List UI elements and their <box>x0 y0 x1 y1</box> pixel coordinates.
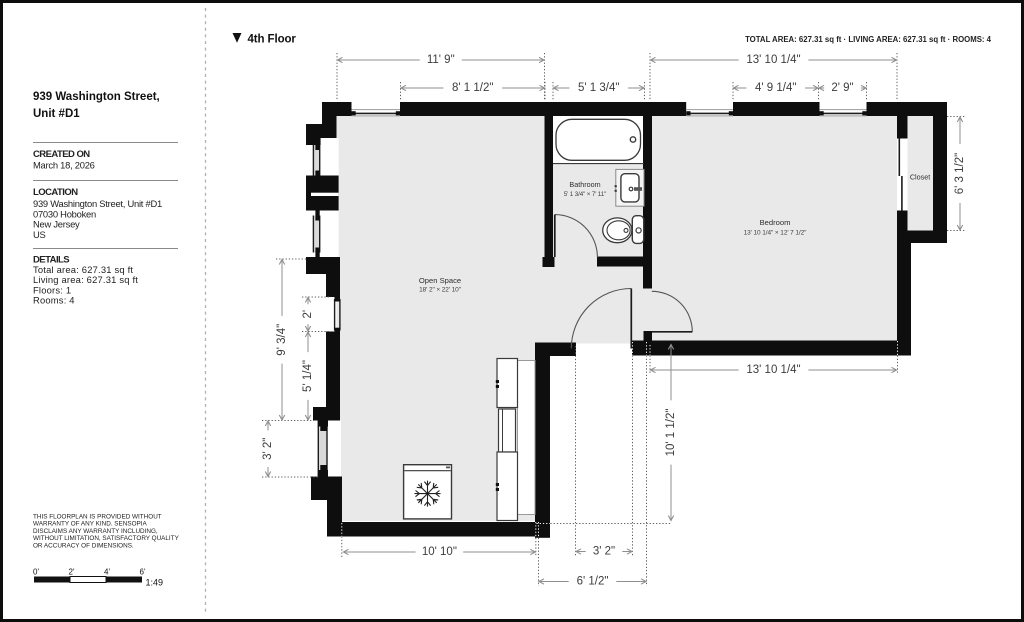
svg-text:9' 3/4": 9' 3/4" <box>276 324 288 356</box>
svg-text:WITHOUT LIMITATION, SATISFACTO: WITHOUT LIMITATION, SATISFACTORY QUALITY <box>33 535 180 542</box>
svg-text:939 Washington Street,: 939 Washington Street, <box>33 91 160 103</box>
svg-text:18' 2" × 22' 10": 18' 2" × 22' 10" <box>419 287 462 294</box>
svg-text:11' 9": 11' 9" <box>427 54 455 66</box>
svg-text:THIS FLOORPLAN IS PROVIDED WIT: THIS FLOORPLAN IS PROVIDED WITHOUT <box>33 514 162 521</box>
svg-text:CREATED ON: CREATED ON <box>33 149 90 160</box>
svg-text:March 18, 2026: March 18, 2026 <box>33 160 95 171</box>
svg-text:Rooms: 4: Rooms: 4 <box>33 295 75 306</box>
svg-text:0': 0' <box>33 568 39 577</box>
svg-text:TOTAL AREA: 627.31 sq ft · LIV: TOTAL AREA: 627.31 sq ft · LIVING AREA: … <box>745 35 992 44</box>
svg-text:LOCATION: LOCATION <box>33 187 78 198</box>
svg-text:5' 1/4": 5' 1/4" <box>302 360 314 392</box>
svg-text:5' 1 3/4": 5' 1 3/4" <box>578 82 619 94</box>
svg-text:4th Floor: 4th Floor <box>248 34 297 46</box>
svg-text:DISCLAIMS ANY WARRANTY INCLUDI: DISCLAIMS ANY WARRANTY INCLUDING, <box>33 528 158 535</box>
svg-text:6' 3 1/2": 6' 3 1/2" <box>954 153 966 194</box>
svg-text:13' 10 1/4": 13' 10 1/4" <box>746 54 800 66</box>
svg-text:10' 10": 10' 10" <box>422 546 457 558</box>
svg-text:2': 2' <box>302 310 314 319</box>
svg-text:US: US <box>33 229 46 240</box>
svg-text:Open Space: Open Space <box>419 276 461 285</box>
svg-text:Closet: Closet <box>910 173 930 182</box>
svg-text:6' 1/2": 6' 1/2" <box>577 576 609 588</box>
svg-text:13' 10 1/4" × 12' 7 1/2": 13' 10 1/4" × 12' 7 1/2" <box>744 230 807 237</box>
svg-text:WARRANTY OF ANY KIND. SENSOPIA: WARRANTY OF ANY KIND. SENSOPIA <box>33 521 148 528</box>
svg-text:3' 2": 3' 2" <box>262 438 274 460</box>
svg-text:2' 9": 2' 9" <box>831 82 853 94</box>
svg-text:10' 1 1/2": 10' 1 1/2" <box>665 409 677 457</box>
svg-text:6': 6' <box>140 568 146 577</box>
svg-text:3' 2": 3' 2" <box>593 546 615 558</box>
svg-text:8' 1 1/2": 8' 1 1/2" <box>452 82 493 94</box>
svg-text:13' 10 1/4": 13' 10 1/4" <box>746 364 800 376</box>
svg-text:Unit #D1: Unit #D1 <box>33 108 80 120</box>
svg-text:OR ACCURACY OF DIMENSIONS.: OR ACCURACY OF DIMENSIONS. <box>33 542 134 549</box>
svg-text:4': 4' <box>104 568 110 577</box>
svg-text:4' 9 1/4": 4' 9 1/4" <box>755 82 796 94</box>
svg-text:Bathroom: Bathroom <box>569 180 600 189</box>
svg-text:2': 2' <box>69 568 75 577</box>
svg-text:Bedroom: Bedroom <box>760 218 791 227</box>
svg-text:5' 1 3/4" × 7' 11": 5' 1 3/4" × 7' 11" <box>564 191 607 198</box>
svg-text:1:49: 1:49 <box>146 578 164 588</box>
